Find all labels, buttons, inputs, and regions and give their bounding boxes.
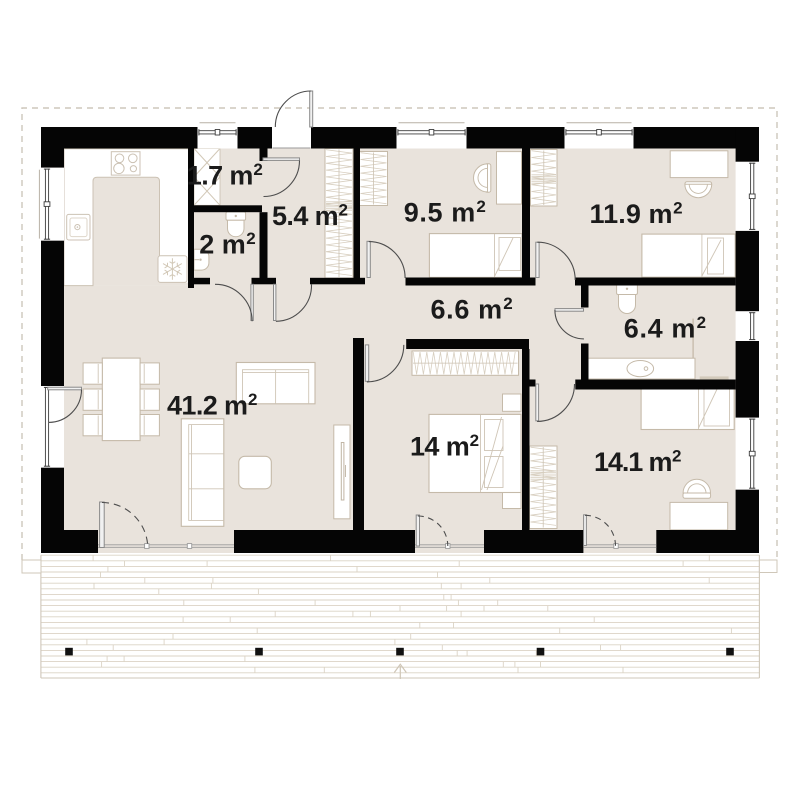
- svg-text:41.2 m2: 41.2 m2: [167, 390, 257, 421]
- svg-text:11.9 m2: 11.9 m2: [590, 199, 683, 230]
- svg-text:14 m2: 14 m2: [410, 431, 479, 462]
- svg-text:5.4 m2: 5.4 m2: [272, 200, 348, 231]
- svg-text:1.7 m2: 1.7 m2: [187, 160, 263, 191]
- svg-text:6.6 m2: 6.6 m2: [431, 294, 514, 325]
- svg-text:9.5 m2: 9.5 m2: [404, 197, 487, 228]
- svg-text:6.4 m2: 6.4 m2: [624, 313, 707, 344]
- svg-text:14.1 m2: 14.1 m2: [594, 447, 681, 478]
